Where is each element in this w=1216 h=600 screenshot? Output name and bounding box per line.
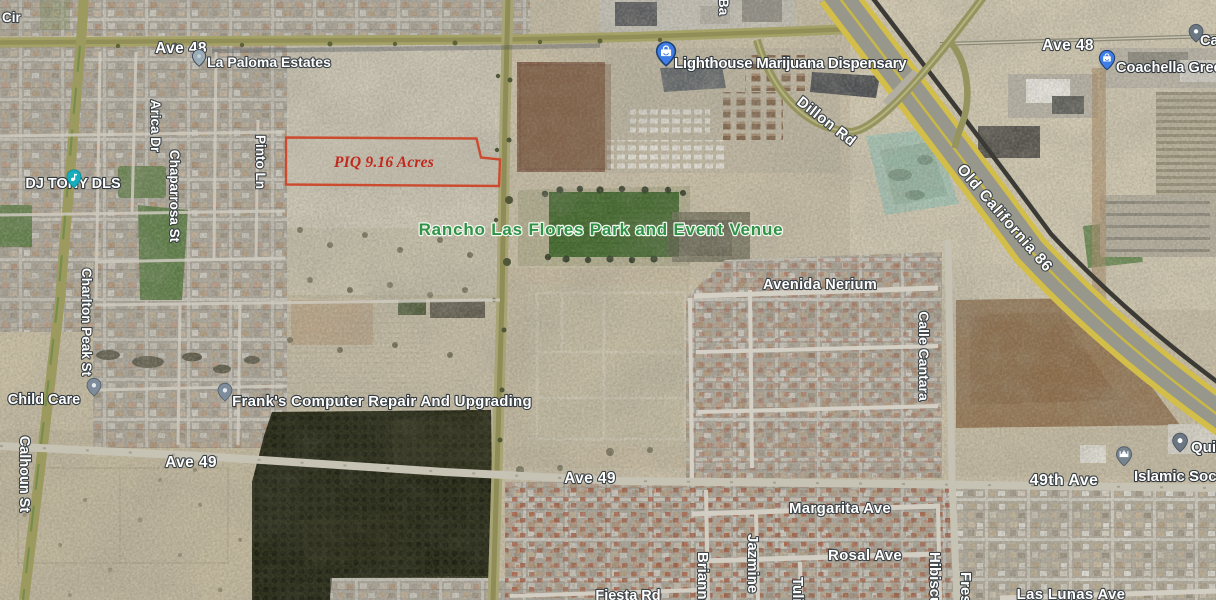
svg-text:Tulip: Tulip [789,577,806,600]
svg-text:Margarita Ave: Margarita Ave [789,500,891,517]
svg-text:Lighthouse Marijuana Dispensar: Lighthouse Marijuana Dispensary [674,55,907,72]
svg-text:Fresia: Fresia [957,572,974,600]
svg-text:PIQ 9.16 Acres: PIQ 9.16 Acres [334,154,434,171]
svg-text:Calhoun St: Calhoun St [16,436,32,513]
svg-text:Fiesta Rd: Fiesta Rd [595,588,660,600]
svg-text:Pinto Ln: Pinto Ln [253,135,268,189]
svg-text:Arica Dr: Arica Dr [148,100,163,153]
svg-text:Rancho Las Flores Park and Eve: Rancho Las Flores Park and Event Venue [419,220,784,239]
svg-text:Avenida Nerium: Avenida Nerium [763,277,877,293]
svg-text:Ba: Ba [716,0,731,16]
svg-text:La Paloma Estates: La Paloma Estates [207,54,331,70]
svg-text:Islamic Socie: Islamic Socie [1134,468,1216,485]
svg-text:Charlton Peak St: Charlton Peak St [79,268,94,377]
svg-text:Brianna: Brianna [694,552,711,600]
svg-text:Ave 48: Ave 48 [1042,37,1094,54]
svg-text:Jazmine: Jazmine [744,534,761,593]
svg-text:Ave 49: Ave 49 [165,454,217,471]
svg-text:Calle Cantara: Calle Cantara [916,311,932,401]
svg-text:Las Lunas Ave: Las Lunas Ave [1017,586,1126,600]
svg-text:Quin: Quin [1191,439,1216,456]
svg-text:Cir: Cir [2,10,22,25]
svg-text:Rosal Ave: Rosal Ave [828,547,902,564]
svg-text:49th Ave: 49th Ave [1030,472,1099,489]
svg-text:Coachella Green: Coachella Green [1116,60,1216,76]
svg-text:Child Care: Child Care [8,392,81,408]
svg-text:Chaparrosa St: Chaparrosa St [167,150,182,243]
svg-text:Ave 49: Ave 49 [564,470,616,487]
svg-text:Hibiscus: Hibiscus [926,552,943,600]
svg-text:Frank's Computer Repair And Up: Frank's Computer Repair And Upgrading [232,393,532,410]
